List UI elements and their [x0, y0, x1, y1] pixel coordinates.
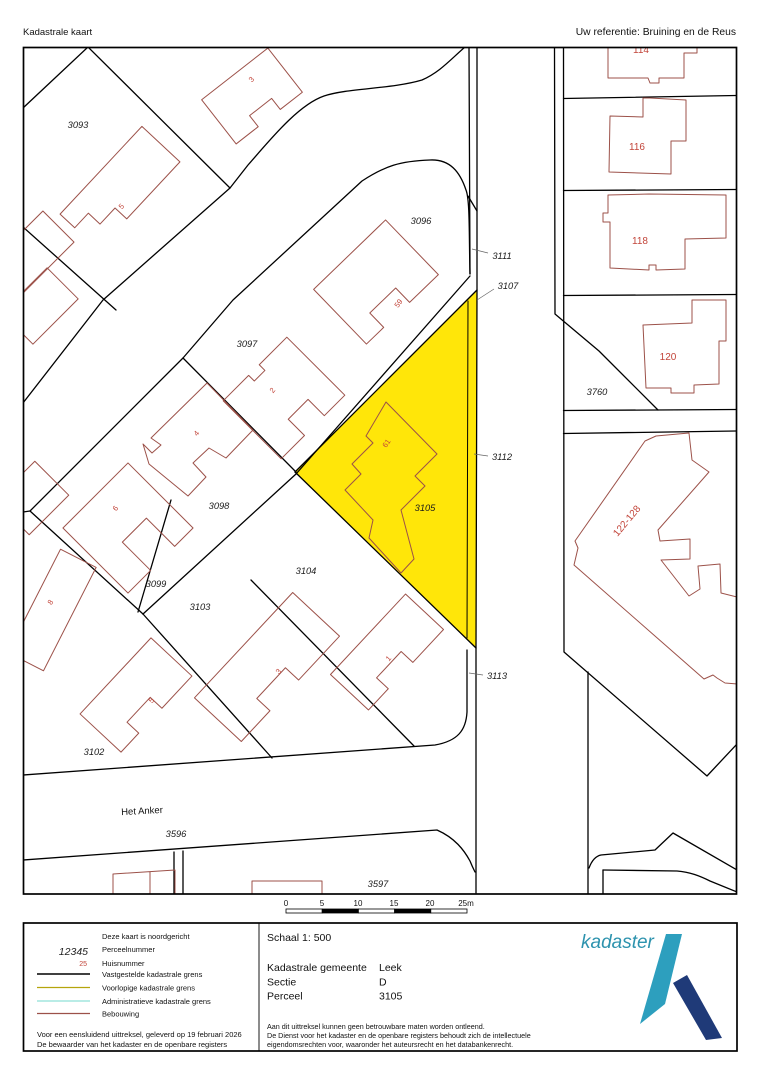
- svg-text:Het Anker: Het Anker: [121, 805, 163, 818]
- svg-text:20: 20: [426, 899, 435, 908]
- svg-text:Voor een eensluidend uittrekse: Voor een eensluidend uittreksel, gelever…: [37, 1030, 242, 1039]
- svg-text:3760: 3760: [587, 387, 609, 397]
- svg-text:Schaal 1: 500: Schaal 1: 500: [267, 932, 331, 944]
- svg-text:120: 120: [660, 352, 677, 363]
- svg-text:3099: 3099: [146, 579, 167, 589]
- svg-text:Bebouwing: Bebouwing: [102, 1010, 139, 1019]
- svg-text:3111: 3111: [492, 251, 511, 261]
- svg-text:10: 10: [354, 899, 363, 908]
- svg-text:De Dienst voor het kadaster en: De Dienst voor het kadaster en de openba…: [267, 1031, 531, 1040]
- svg-text:5: 5: [320, 899, 325, 908]
- svg-text:3596: 3596: [166, 829, 188, 839]
- svg-text:3105: 3105: [379, 991, 403, 1003]
- svg-text:12345: 12345: [59, 946, 88, 958]
- svg-text:Kadastrale gemeente: Kadastrale gemeente: [267, 962, 367, 974]
- svg-text:3105: 3105: [415, 503, 437, 513]
- svg-text:3103: 3103: [190, 602, 212, 612]
- svg-text:Aan dit uittreksel kunnen geen: Aan dit uittreksel kunnen geen betrouwba…: [267, 1022, 485, 1031]
- svg-text:Huisnummer: Huisnummer: [102, 959, 145, 968]
- svg-text:0: 0: [284, 899, 289, 908]
- svg-text:3102: 3102: [84, 747, 106, 757]
- svg-text:De bewaarder van het kadaster: De bewaarder van het kadaster en de open…: [37, 1040, 227, 1049]
- svg-text:3097: 3097: [237, 339, 259, 349]
- svg-text:15: 15: [390, 899, 399, 908]
- svg-text:Sectie: Sectie: [267, 977, 296, 989]
- svg-text:116: 116: [629, 142, 645, 153]
- svg-text:3104: 3104: [296, 566, 317, 576]
- svg-text:3096: 3096: [411, 216, 433, 226]
- svg-text:3098: 3098: [209, 501, 231, 511]
- svg-text:eigendomsrechten voor, waarond: eigendomsrechten voor, waaronder het aut…: [267, 1040, 513, 1049]
- svg-text:Voorlopige kadastrale grens: Voorlopige kadastrale grens: [102, 984, 195, 993]
- svg-text:Administratieve kadastrale gre: Administratieve kadastrale grens: [102, 997, 211, 1006]
- svg-text:3107: 3107: [498, 281, 520, 291]
- svg-text:3112: 3112: [492, 452, 513, 462]
- svg-text:Kadastrale kaart: Kadastrale kaart: [23, 27, 93, 38]
- svg-text:Vastgestelde kadastrale grens: Vastgestelde kadastrale grens: [102, 970, 203, 979]
- svg-text:Perceelnummer: Perceelnummer: [102, 945, 155, 954]
- svg-text:3093: 3093: [68, 120, 90, 130]
- svg-text:25m: 25m: [458, 899, 474, 908]
- svg-text:kadaster: kadaster: [581, 932, 655, 953]
- svg-text:25: 25: [79, 961, 87, 968]
- svg-text:3597: 3597: [368, 879, 390, 889]
- svg-text:Leek: Leek: [379, 962, 403, 974]
- svg-text:Uw referentie: Bruining en de: Uw referentie: Bruining en de Reus: [576, 27, 736, 38]
- svg-text:Deze kaart is noordgericht: Deze kaart is noordgericht: [102, 932, 190, 941]
- svg-text:Perceel: Perceel: [267, 991, 303, 1003]
- svg-text:D: D: [379, 977, 387, 989]
- svg-text:3113: 3113: [487, 671, 508, 681]
- svg-text:118: 118: [632, 236, 648, 247]
